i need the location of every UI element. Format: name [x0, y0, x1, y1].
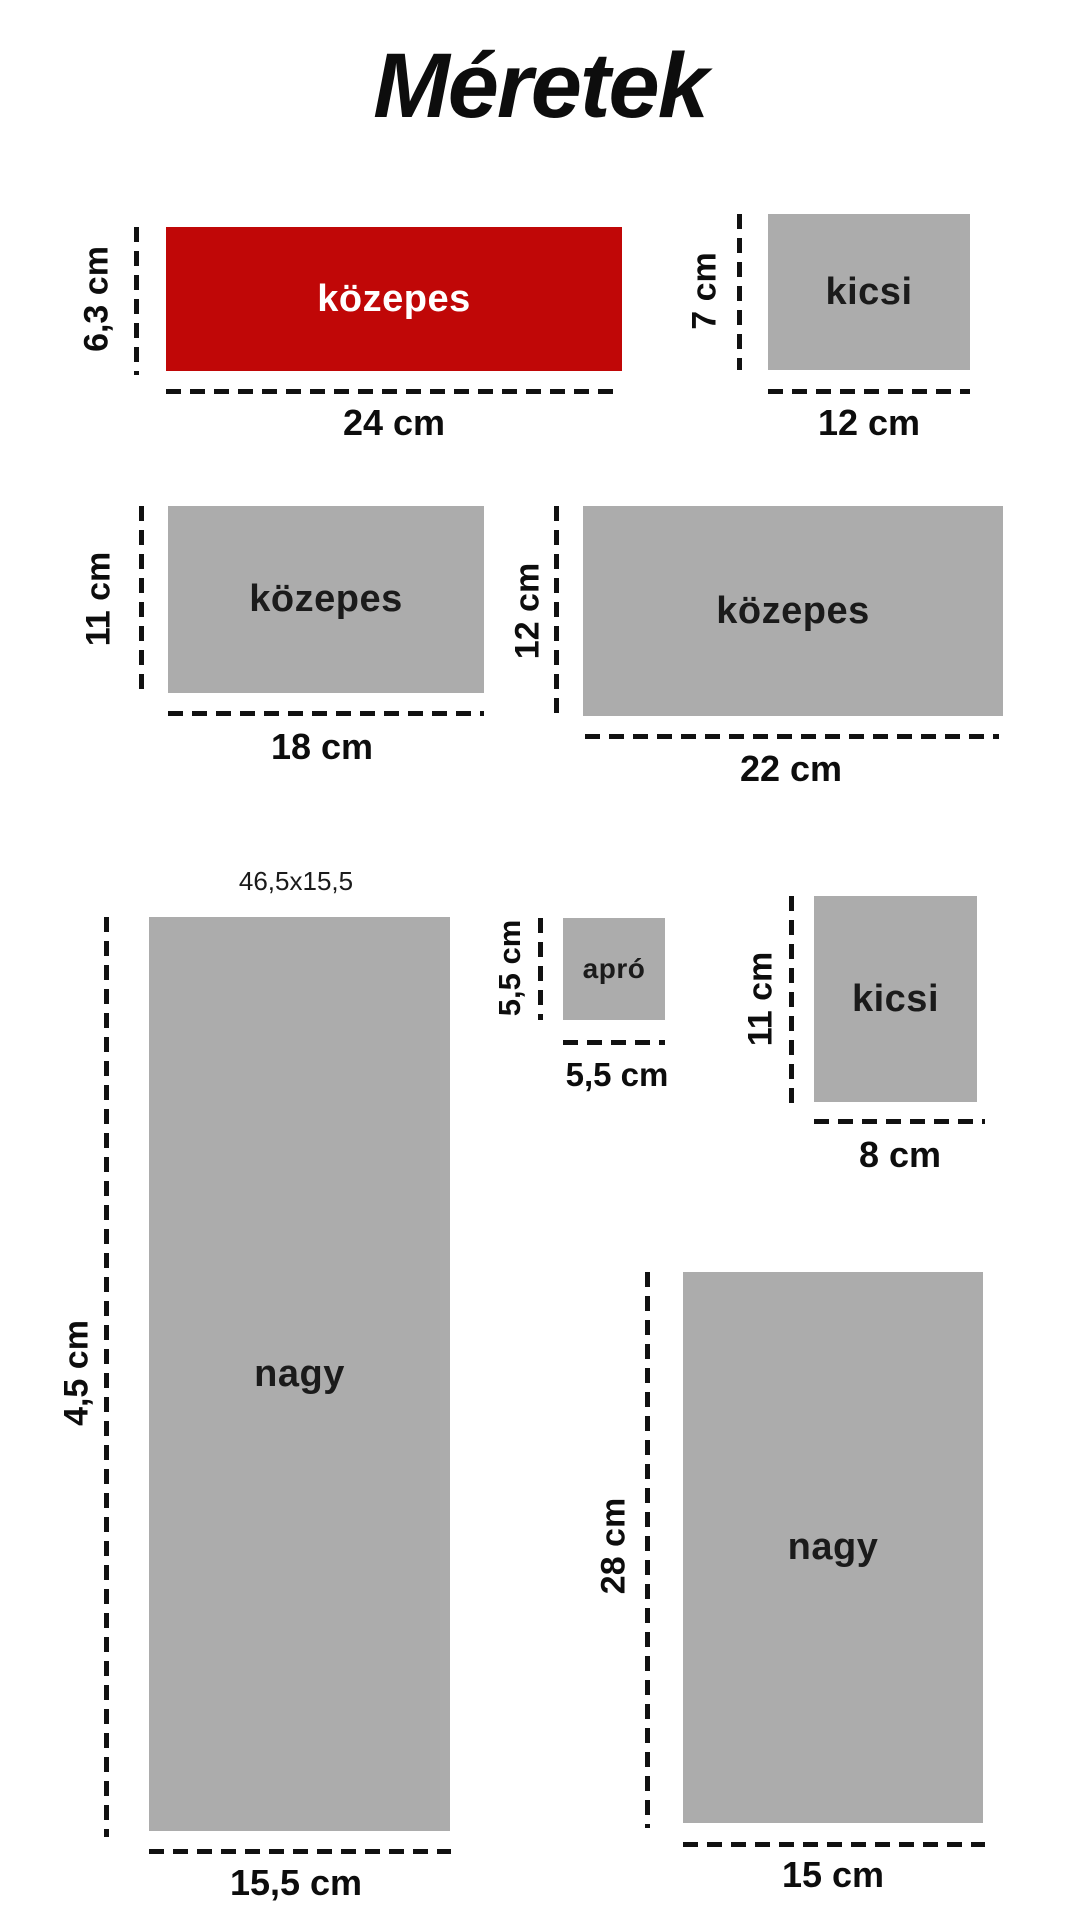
width-label: 12 cm — [818, 402, 920, 444]
height-dash-line — [134, 227, 139, 375]
width-label: 22 cm — [740, 748, 842, 790]
height-label: 28 cm — [595, 1498, 634, 1594]
height-label: 12 cm — [509, 563, 548, 659]
width-dash-line — [585, 734, 999, 739]
size-box-kicsi-top: kicsi — [768, 214, 970, 370]
box-label: nagy — [254, 1353, 345, 1396]
height-dash-line — [554, 506, 559, 718]
height-dash-line — [789, 896, 794, 1104]
box-label: közepes — [716, 590, 869, 633]
size-diagram: Méretek 6,3 cm közepes 24 cm 7 cm kicsi … — [0, 0, 1080, 1920]
width-dash-line — [563, 1040, 665, 1045]
height-label: 11 cm — [80, 552, 119, 647]
size-box-kozepes-left: közepes — [168, 506, 484, 693]
size-box-nagy-right: nagy — [683, 1272, 983, 1823]
width-label: 15,5 cm — [230, 1862, 362, 1904]
box-label: kicsi — [852, 978, 939, 1021]
width-label: 5,5 cm — [566, 1056, 669, 1094]
box-label: közepes — [317, 278, 470, 321]
width-dash-line — [814, 1119, 985, 1124]
height-label: 11 cm — [742, 952, 781, 1047]
height-dash-line — [139, 506, 144, 696]
width-dash-line — [168, 711, 484, 716]
width-dash-line — [768, 389, 970, 394]
size-box-apro: apró — [563, 918, 665, 1020]
box-label: apró — [583, 953, 646, 985]
width-dash-line — [166, 389, 622, 394]
width-dash-line — [149, 1849, 451, 1854]
height-label: 6,3 cm — [78, 246, 117, 352]
width-label: 18 cm — [271, 726, 373, 768]
dimensions-note: 46,5x15,5 — [239, 866, 353, 897]
size-box-nagy-left: nagy — [149, 917, 450, 1831]
height-dash-line — [737, 214, 742, 370]
box-label: közepes — [249, 578, 402, 621]
width-label: 15 cm — [782, 1854, 884, 1896]
size-box-kicsi-mid: kicsi — [814, 896, 977, 1102]
height-label: 7 cm — [686, 252, 725, 330]
size-box-kozepes-red: közepes — [166, 227, 622, 371]
box-label: kicsi — [825, 271, 912, 314]
diagram-title: Méretek — [0, 40, 1080, 132]
height-label: 4,5 cm — [58, 1320, 97, 1426]
width-dash-line — [683, 1842, 985, 1847]
height-dash-line — [538, 918, 543, 1020]
height-label: 5,5 cm — [492, 920, 528, 1017]
size-box-kozepes-right: közepes — [583, 506, 1003, 716]
height-dash-line — [645, 1272, 650, 1828]
box-label: nagy — [788, 1526, 879, 1569]
width-label: 24 cm — [343, 402, 445, 444]
width-label: 8 cm — [859, 1134, 941, 1176]
height-dash-line — [104, 917, 109, 1837]
